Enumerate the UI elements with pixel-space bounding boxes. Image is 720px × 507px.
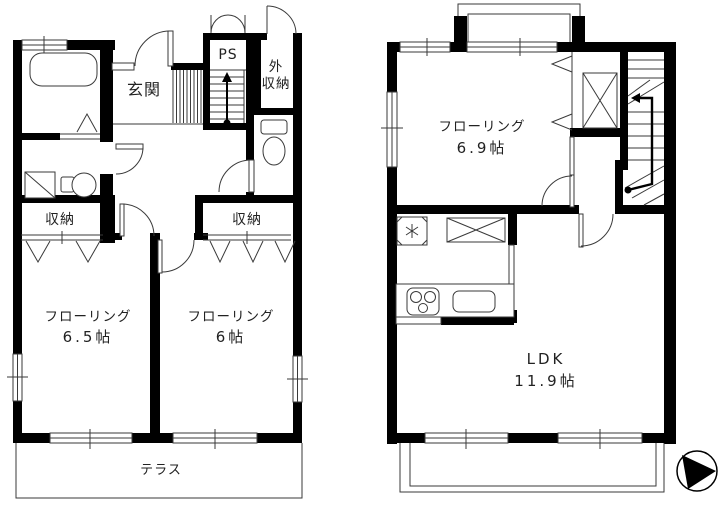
window: [50, 429, 132, 449]
bathtub-icon: [30, 53, 97, 86]
room-b-size: 6帖: [216, 328, 247, 346]
ps-double-door-icon: [211, 15, 245, 33]
closet-right-front: [203, 231, 295, 262]
door-arc: [219, 160, 254, 192]
closet-icon: [552, 52, 617, 130]
room-c-size: 6.9帖: [457, 139, 508, 157]
north-arrow-icon: [677, 451, 717, 491]
exterior-storage-label: 収納: [262, 76, 291, 92]
balcony-top: [458, 4, 580, 42]
entrance-step-hatch: [173, 70, 201, 123]
door-arc: [158, 240, 194, 273]
ldk-name: LDK: [527, 350, 566, 368]
floorplan-page: 玄関 PS 外 収納 収納 収納 フローリング 6.5帖 フローリング 6帖 テ…: [0, 0, 720, 507]
laundry-space-icon: [397, 217, 427, 245]
door-arc: [542, 175, 574, 207]
bathroom: [30, 53, 100, 139]
stove-icon: [407, 288, 439, 315]
kitchen: [396, 217, 514, 324]
washroom: [25, 144, 143, 198]
sink-icon: [61, 173, 96, 197]
balcony-bottom: [400, 443, 664, 492]
window: [558, 429, 642, 449]
closet-right-label: 収納: [232, 212, 262, 228]
entrance-door-icon: [135, 31, 173, 66]
floorplan-drawing: 玄関 PS 外 収納 収納 収納 フローリング 6.5帖 フローリング 6帖 テ…: [0, 0, 720, 507]
hall-area: [542, 137, 613, 247]
room-a-size: 6.5帖: [63, 328, 114, 346]
window: [381, 92, 403, 167]
ldk-size: 11.9帖: [514, 372, 577, 390]
stairs-up-icon: [210, 70, 246, 127]
terrace-label: テラス: [140, 463, 182, 478]
window: [287, 356, 308, 402]
refrigerator-icon: [447, 218, 505, 242]
entrance-label: 玄関: [127, 80, 161, 99]
window: [425, 429, 508, 449]
window: [400, 38, 450, 56]
kitchen-sink-icon: [453, 291, 495, 312]
door-arc: [120, 204, 154, 236]
storage-door-icon: [267, 6, 296, 34]
room-b-name: フローリング: [188, 309, 275, 325]
window: [467, 38, 557, 56]
window: [22, 36, 67, 54]
room-c-name: フローリング: [439, 119, 526, 135]
entrance-area: [112, 31, 203, 124]
door-arc: [579, 214, 613, 247]
window: [173, 429, 257, 449]
folding-door-icon: [77, 114, 97, 132]
counter-edge: [396, 317, 441, 324]
floor2-plan: フローリング 6.9帖 LDK 11.9帖: [381, 4, 717, 492]
room-a-name: フローリング: [45, 309, 132, 325]
closet-left-label: 収納: [45, 212, 75, 228]
ps-label: PS: [218, 47, 237, 63]
window: [7, 354, 28, 401]
washing-machine-icon: [25, 172, 55, 198]
pass-through: [509, 245, 514, 285]
stairs-icon: [625, 60, 665, 205]
floor1-plan: 玄関 PS 外 収納 収納 収納 フローリング 6.5帖 フローリング 6帖 テ…: [7, 6, 308, 498]
door-arc: [116, 144, 143, 174]
toilet-icon: [261, 120, 287, 165]
closet-left-front: [21, 231, 103, 262]
exterior-storage-label: 外: [269, 59, 284, 75]
